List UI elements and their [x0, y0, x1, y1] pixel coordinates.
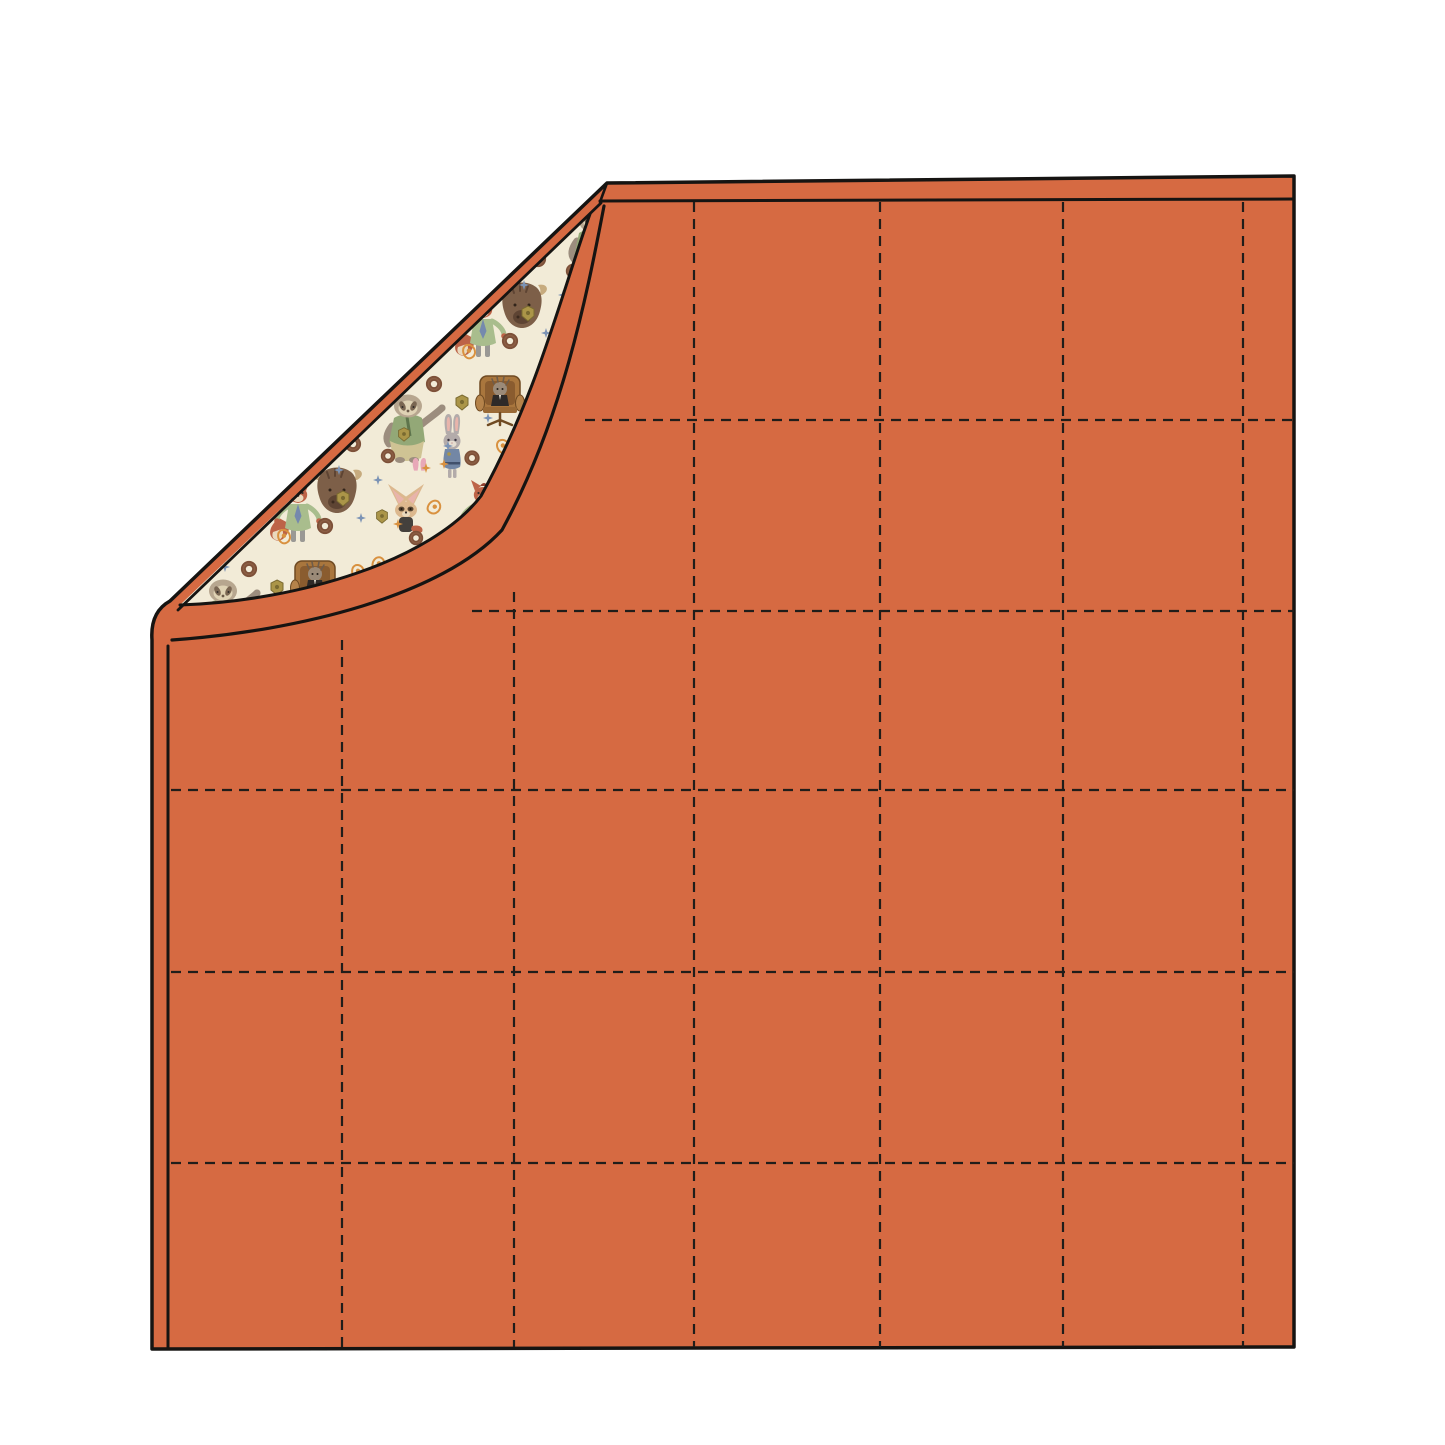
binding-seam-top [600, 199, 1294, 201]
blanket-mockup-canvas [0, 0, 1445, 1445]
blanket-mockup [0, 0, 1445, 1445]
blanket [152, 176, 1294, 1349]
blanket-body [152, 176, 1294, 1349]
